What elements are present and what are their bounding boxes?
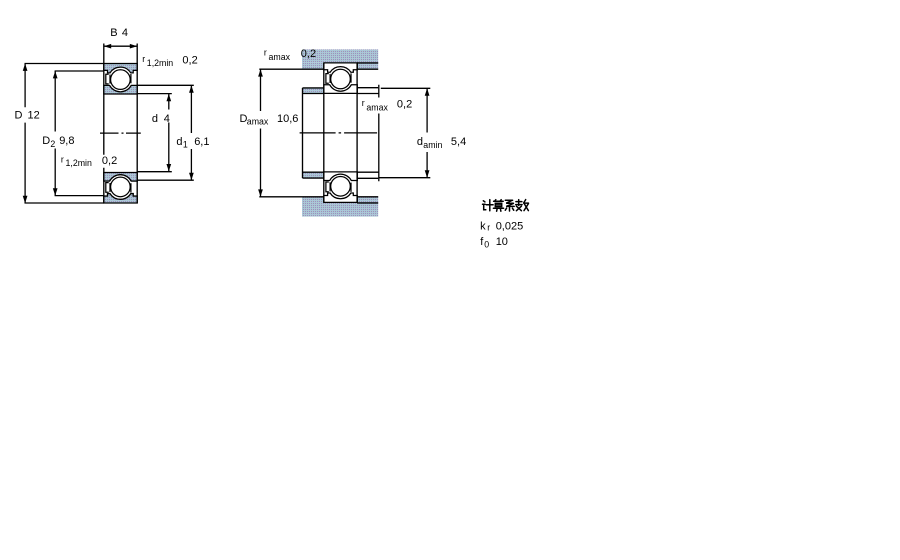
svg-text:0,2: 0,2 [397,99,412,111]
svg-text:B: B [110,27,117,39]
svg-text:r: r [61,154,64,164]
svg-text:0,025: 0,025 [496,221,524,233]
svg-text:d: d [417,136,423,148]
svg-text:1,2min: 1,2min [147,58,174,68]
svg-text:amin: amin [423,140,442,150]
svg-text:1,2min: 1,2min [66,158,93,168]
svg-text:6,1: 6,1 [194,136,209,148]
svg-text:0,2: 0,2 [182,54,197,66]
svg-text:amax: amax [269,52,291,62]
svg-text:amax: amax [366,102,388,112]
svg-text:d: d [176,136,182,148]
svg-text:10: 10 [496,236,508,248]
svg-text:2: 2 [50,139,55,149]
svg-text:r: r [142,54,145,64]
svg-text:D: D [15,110,23,122]
svg-text:5,4: 5,4 [451,136,466,148]
svg-text:10,6: 10,6 [277,113,298,125]
svg-text:D: D [42,135,50,147]
svg-text:1: 1 [183,140,188,150]
svg-text:amax: amax [247,116,269,126]
svg-text:0: 0 [484,239,489,249]
svg-text:9,8: 9,8 [59,135,74,147]
svg-text:0,2: 0,2 [301,48,316,60]
svg-text:0,2: 0,2 [102,155,117,167]
svg-text:4: 4 [164,113,170,125]
svg-text:r: r [487,222,490,232]
svg-text:4: 4 [122,27,128,39]
svg-text:d: d [152,113,158,125]
svg-text:12: 12 [28,110,40,122]
svg-text:r: r [264,48,267,58]
svg-text:r: r [362,98,365,108]
svg-text:k: k [480,221,486,233]
